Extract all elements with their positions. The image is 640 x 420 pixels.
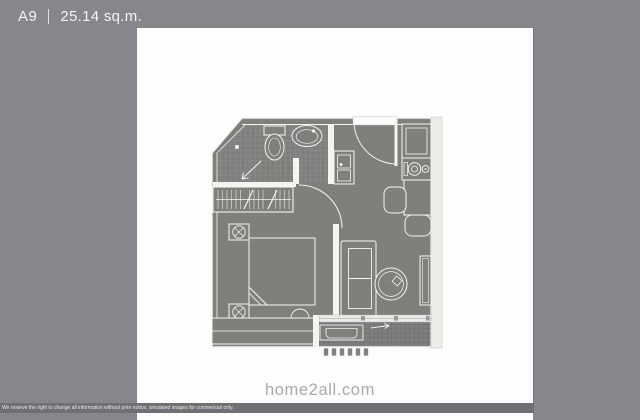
header: A9 25.14 sq.m. xyxy=(18,4,142,28)
area-label: 25.14 sq.m. xyxy=(60,8,142,25)
wash-basin xyxy=(292,126,322,147)
balcony-louvers xyxy=(324,348,369,356)
bathroom-bottom-wall xyxy=(213,182,296,187)
bathroom-partition-wall xyxy=(328,125,334,184)
sofa xyxy=(341,241,376,317)
refrigerator-cabinet xyxy=(402,124,431,158)
tv-console xyxy=(420,256,431,305)
living-bedroom-wall xyxy=(333,224,339,317)
floorplan-svg xyxy=(137,28,533,403)
dining-table xyxy=(404,180,431,215)
floorplan-canvas: home2all.com xyxy=(137,28,534,403)
header-divider-line xyxy=(48,9,49,24)
shower-head-icon xyxy=(235,145,239,149)
ac-condenser-unit xyxy=(320,325,363,340)
bedroom-window xyxy=(212,318,316,344)
disclaimer-text: We reserve the right to change all infor… xyxy=(2,405,234,411)
unit-label: A9 xyxy=(18,8,37,25)
balcony-divider-wall xyxy=(313,315,319,347)
wardrobe xyxy=(213,187,293,212)
balcony xyxy=(313,315,431,356)
right-exterior-wall xyxy=(431,117,442,348)
entry-door-opening xyxy=(353,117,397,126)
utility-sink-unit xyxy=(334,151,354,184)
round-side-table xyxy=(375,268,407,300)
disclaimer-bar: We reserve the right to change all infor… xyxy=(0,403,534,413)
bed xyxy=(249,238,315,305)
watermark: home2all.com xyxy=(265,381,375,400)
bottom-strip xyxy=(137,413,533,420)
nightstand-top xyxy=(229,224,249,240)
sliding-door-track xyxy=(319,315,431,322)
two-burner-stove xyxy=(402,158,431,180)
toilet xyxy=(264,126,285,160)
dining-chair-bottom xyxy=(405,215,431,236)
dining-chair-left xyxy=(384,187,406,213)
page: A9 25.14 sq.m. xyxy=(0,0,640,420)
